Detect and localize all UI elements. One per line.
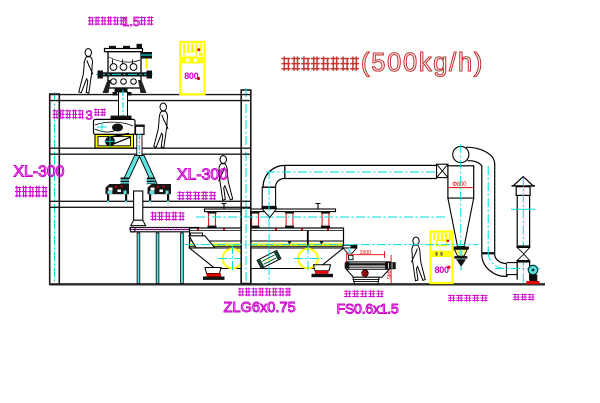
svg-text:1.5: 1.5 [123, 15, 140, 29]
svg-text:800: 800 [184, 71, 198, 81]
svg-text:3: 3 [86, 108, 93, 123]
svg-text:(500kg/h): (500kg/h) [361, 49, 484, 77]
svg-text:1500: 1500 [360, 250, 372, 256]
svg-text:XL-300: XL-300 [177, 167, 228, 184]
svg-text:800: 800 [435, 265, 449, 275]
svg-text:XL-300: XL-300 [14, 164, 65, 181]
svg-text:ZLG6x0.75: ZLG6x0.75 [224, 300, 296, 316]
svg-text:FS0.6x1.5: FS0.6x1.5 [337, 302, 399, 318]
